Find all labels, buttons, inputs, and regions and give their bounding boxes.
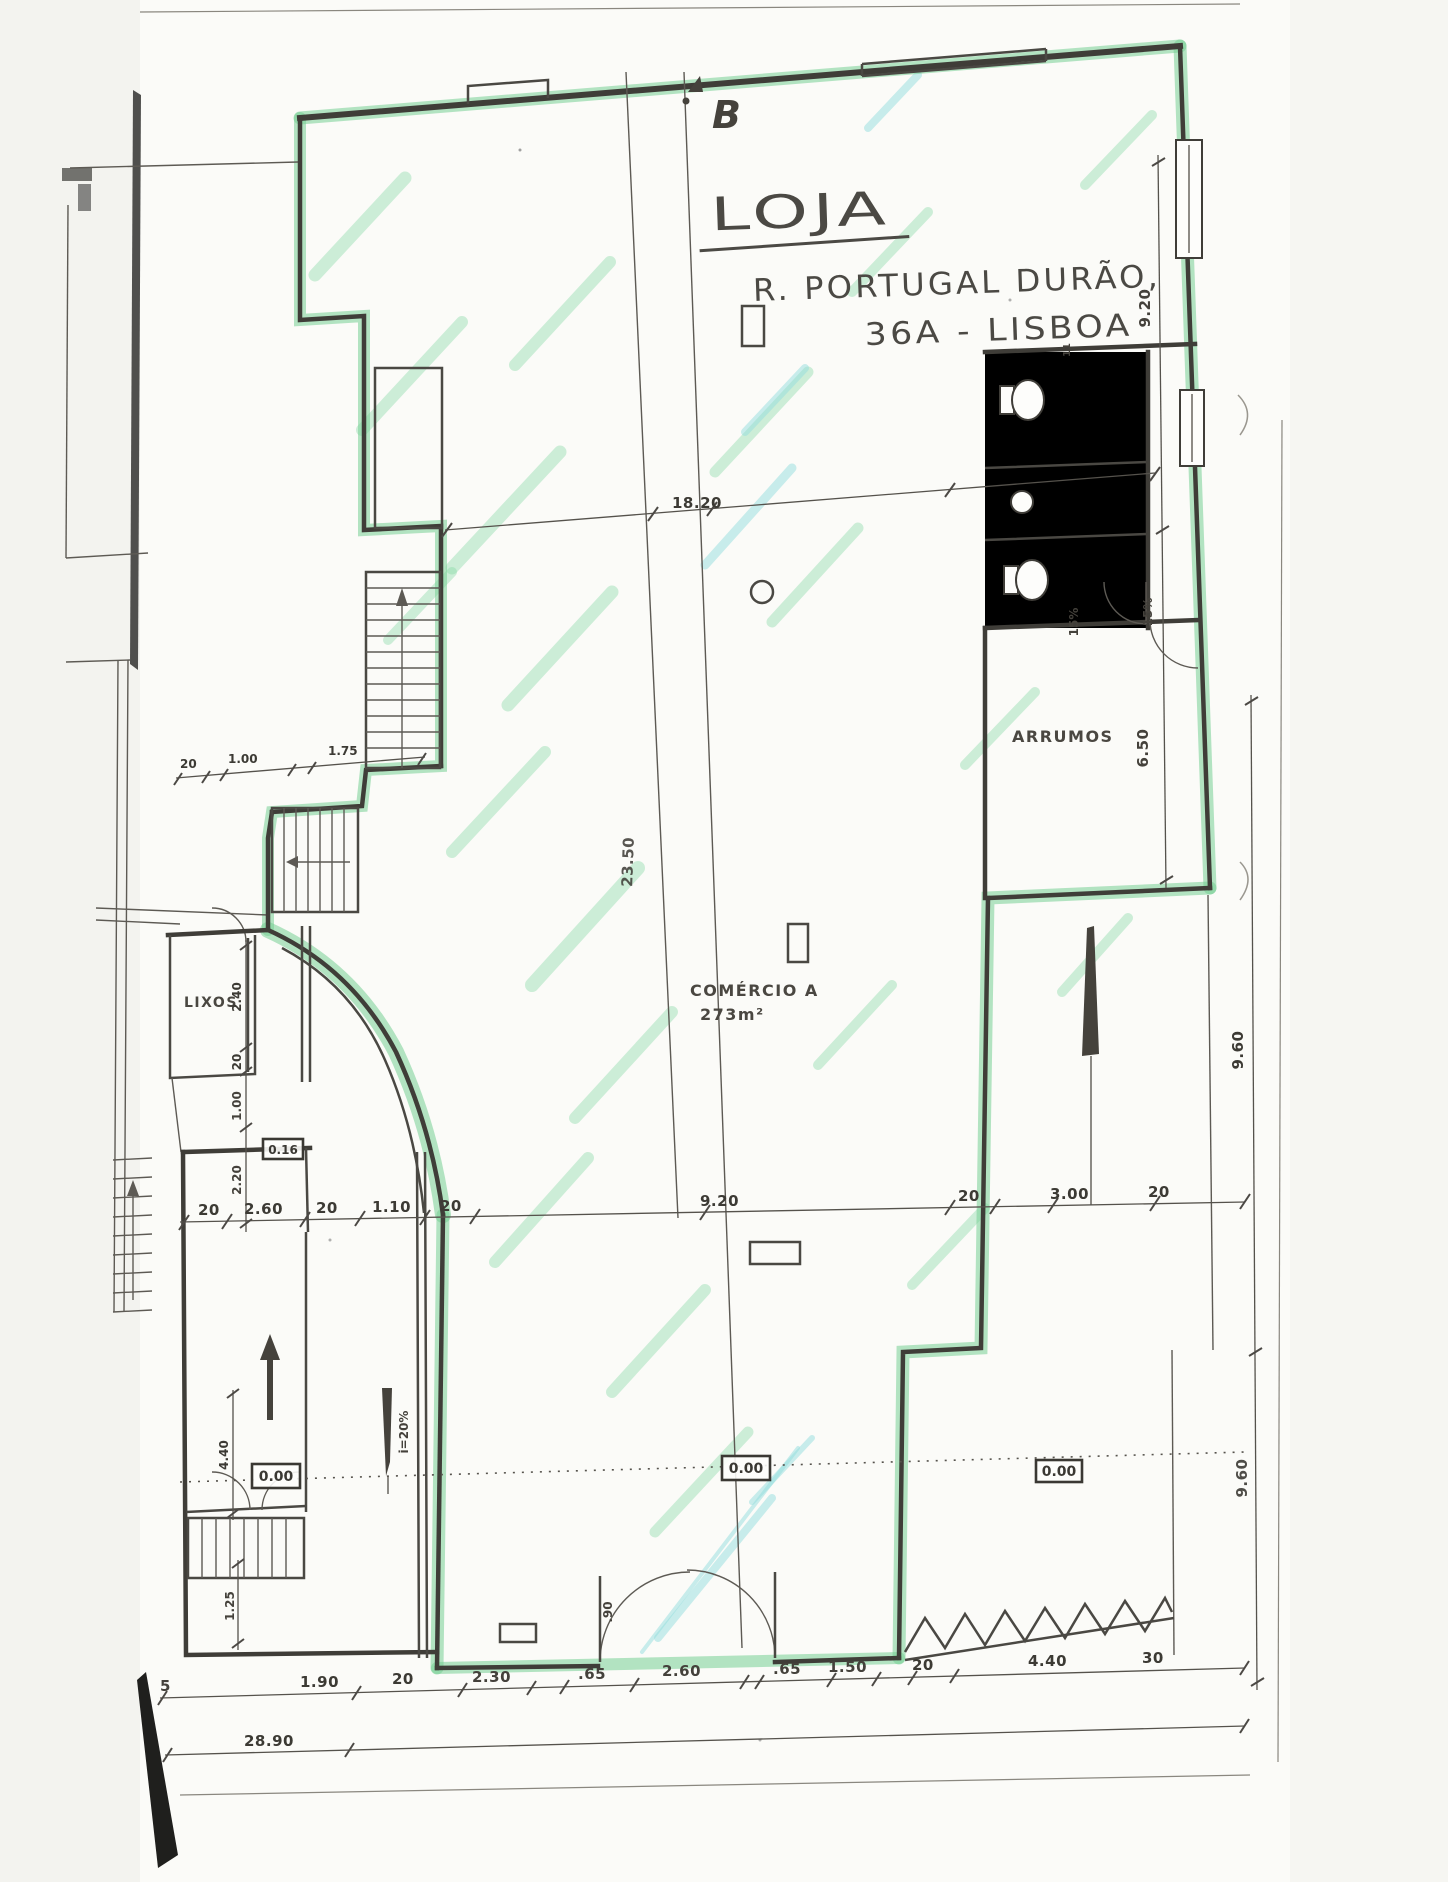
dim-lu-3: 1.75 — [328, 744, 358, 758]
dim-mid-6: 9.20 — [700, 1192, 739, 1210]
scanned-floor-plan: 0.00 0.00 0.00 0.16 — [0, 0, 1448, 1882]
toilet-icon — [1000, 380, 1044, 420]
dim-lc-4: 2.20 — [230, 1165, 244, 1195]
room-arrumos: ARRUMOS — [1012, 727, 1114, 746]
title-loja: LOJA — [709, 181, 891, 241]
dim-lu-2: 1.00 — [228, 752, 258, 766]
room-comercio: COMÉRCIO A — [690, 981, 819, 1000]
dim-wc-wall: 11 — [1062, 343, 1073, 357]
dim-bot-4: 2.30 — [472, 1668, 511, 1686]
dim-bot-10: 4.40 — [1028, 1652, 1067, 1670]
slope-wc-2: 15% — [1141, 598, 1155, 627]
dim-mid-9: 20 — [1148, 1183, 1170, 1201]
dim-right-inner-1: 9.20 — [1136, 288, 1154, 327]
dim-right-inner-2: 6.50 — [1134, 728, 1152, 767]
dim-bot-1: 5 — [160, 1677, 171, 1695]
dim-lc-2: 20 — [230, 1054, 244, 1071]
dim-bot-7: .65 — [773, 1660, 801, 1678]
paper-background — [0, 0, 1448, 1882]
dim-bot-6: 2.60 — [662, 1662, 701, 1680]
dim-door: .90 — [601, 1601, 615, 1622]
dim-bot-3: 20 — [392, 1670, 414, 1688]
level-mezz: 0.16 — [268, 1143, 298, 1157]
dim-lc-6: 1.25 — [223, 1591, 237, 1621]
dim-bot-11: 30 — [1142, 1649, 1164, 1667]
sink-icon — [1011, 491, 1033, 513]
dim-lc-1: 2.40 — [230, 982, 244, 1012]
dim-mid-8: 3.00 — [1050, 1185, 1089, 1203]
dim-lu-1: 20 — [180, 757, 197, 771]
toilet-icon-2 — [1004, 560, 1048, 600]
dim-lc-5: 4.40 — [217, 1440, 231, 1470]
dim-total: 28.90 — [244, 1732, 294, 1750]
dim-right-outer-2: 9.60 — [1233, 1458, 1251, 1497]
slope-wc-1: 15% — [1067, 608, 1081, 637]
level-center: 0.00 — [729, 1461, 764, 1477]
section-marker-b: B — [712, 93, 741, 137]
level-right: 0.00 — [1042, 1464, 1077, 1480]
dim-right-outer-1: 9.60 — [1229, 1030, 1247, 1069]
level-left: 0.00 — [259, 1469, 294, 1485]
dim-bot-5: .65 — [578, 1665, 606, 1683]
dim-top: 18.20 — [672, 494, 722, 512]
dim-mid-7: 20 — [958, 1187, 980, 1205]
room-comercio-area: 273m² — [700, 1005, 765, 1024]
dim-bot-2: 1.90 — [300, 1673, 339, 1691]
dim-bot-9: 20 — [912, 1656, 934, 1674]
dim-bot-8: 1.50 — [828, 1658, 867, 1676]
dim-mid-4: 1.10 — [372, 1198, 411, 1216]
dim-mid-1: 20 — [198, 1201, 220, 1219]
slope-ramp: i=20% — [397, 1411, 411, 1454]
dim-center-vertical: 23.50 — [618, 837, 638, 888]
dim-mid-2: 2.60 — [244, 1200, 283, 1218]
dim-mid-3: 20 — [316, 1199, 338, 1217]
dim-mid-5: 20 — [440, 1197, 462, 1215]
dim-lc-3: 1.00 — [230, 1091, 244, 1121]
